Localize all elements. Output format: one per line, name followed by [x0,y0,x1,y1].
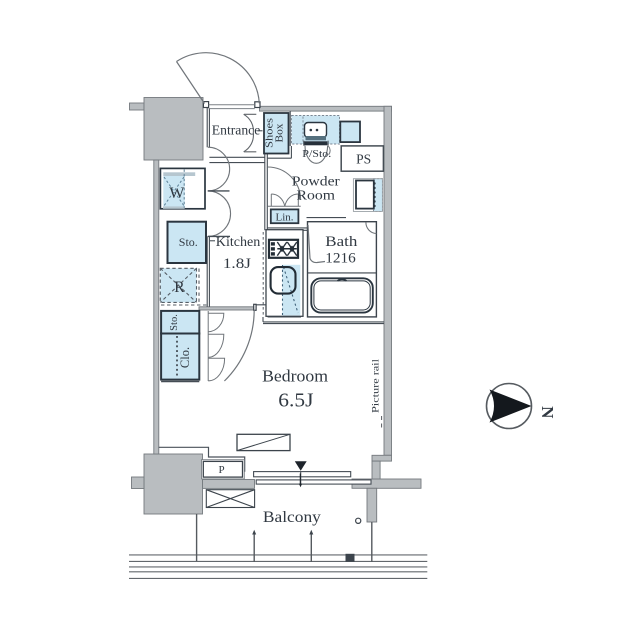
svg-text:Picture rail: Picture rail [371,358,381,413]
svg-text:Clo.: Clo. [178,347,192,368]
svg-text:PS: PS [356,152,371,167]
svg-text:N: N [538,406,557,419]
svg-text:R: R [174,279,185,296]
svg-text:Lin.: Lin. [276,212,294,224]
svg-text:6.5J: 6.5J [278,389,313,411]
svg-text:Balcony: Balcony [263,509,321,526]
svg-text:Sto.: Sto. [169,314,180,331]
svg-text:1.8J: 1.8J [223,256,251,272]
svg-text:Kitchen: Kitchen [216,235,260,250]
svg-text:Bath: Bath [325,234,358,250]
svg-text:P: P [219,464,225,476]
svg-text:Sto.: Sto. [179,235,198,249]
svg-text:Powder: Powder [292,174,340,189]
svg-text:Bedroom: Bedroom [262,367,328,386]
svg-text:1216: 1216 [325,250,356,266]
svg-text:W: W [169,185,185,202]
svg-text:Box: Box [274,124,285,143]
svg-text:P/Sto.: P/Sto. [302,149,331,160]
svg-text:Entrance: Entrance [212,122,261,137]
svg-text:Room: Room [297,189,336,204]
